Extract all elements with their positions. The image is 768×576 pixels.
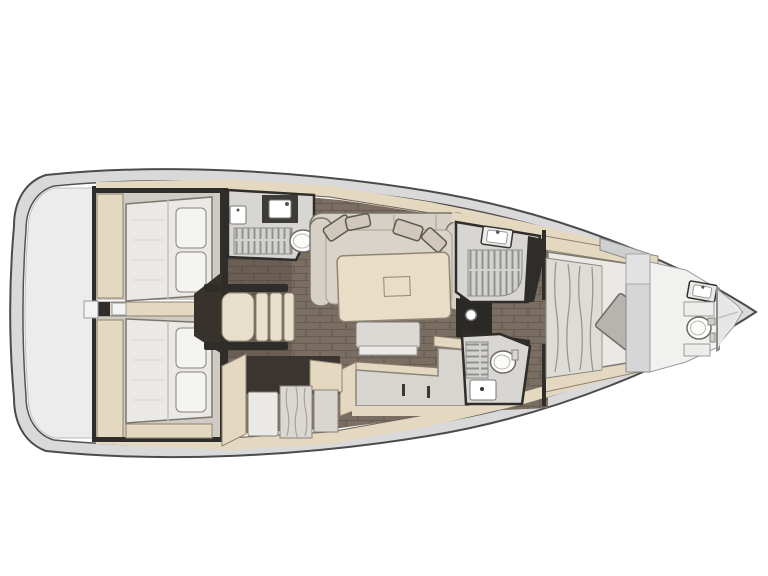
bulkhead [542,344,546,406]
door-knob [466,310,477,321]
bench-seat [356,322,420,348]
bow-lower-shelf [684,344,710,356]
step [270,293,282,341]
steps-rail-bottom [204,342,288,350]
galley-front-band [352,406,470,416]
faucet [237,209,240,212]
toilet-seat [691,321,706,335]
nav-side-panel [314,390,338,432]
aft-cabin-port-wardrobe [97,194,123,298]
toilet-tank [512,350,518,360]
toilet-seat [494,355,510,369]
wardrobe-top-shelf [626,254,650,284]
nav-cabinet-right [310,360,342,392]
yacht-floor-plan-canvas [0,0,768,576]
shower-grate [466,342,488,378]
nav-locker [248,392,278,436]
divider-white-locker [112,303,126,315]
toilet-tank [708,318,715,325]
saloon-table [337,252,451,322]
steps-rail-top [204,284,288,292]
bow-shelf [684,302,714,316]
aft-head [228,190,319,260]
step [284,293,294,341]
aft-cabin-starboard-wardrobe [97,320,123,438]
drawer-handle [402,384,405,396]
toilet-pump [710,333,715,342]
pillow [176,372,206,412]
shower-grate [468,250,522,296]
yacht-floor-plan [0,0,768,576]
faucet [480,387,484,391]
aft-cabin-starboard-drawer [126,424,212,438]
bench-base [359,346,417,355]
step [256,293,268,341]
faucet [285,202,289,206]
shower-grate [234,228,292,254]
nav-station [222,354,342,446]
bulkhead [542,230,546,300]
toilet-seat [294,234,311,248]
pillow [176,208,206,248]
nav-cabinet-left [222,354,246,446]
drawer-handle [427,386,430,398]
pillow [176,252,206,292]
stern-hatch [84,301,98,318]
aft-cabin-port-top-wall [96,188,228,193]
step [222,293,254,341]
forward-head-starboard [462,330,530,404]
